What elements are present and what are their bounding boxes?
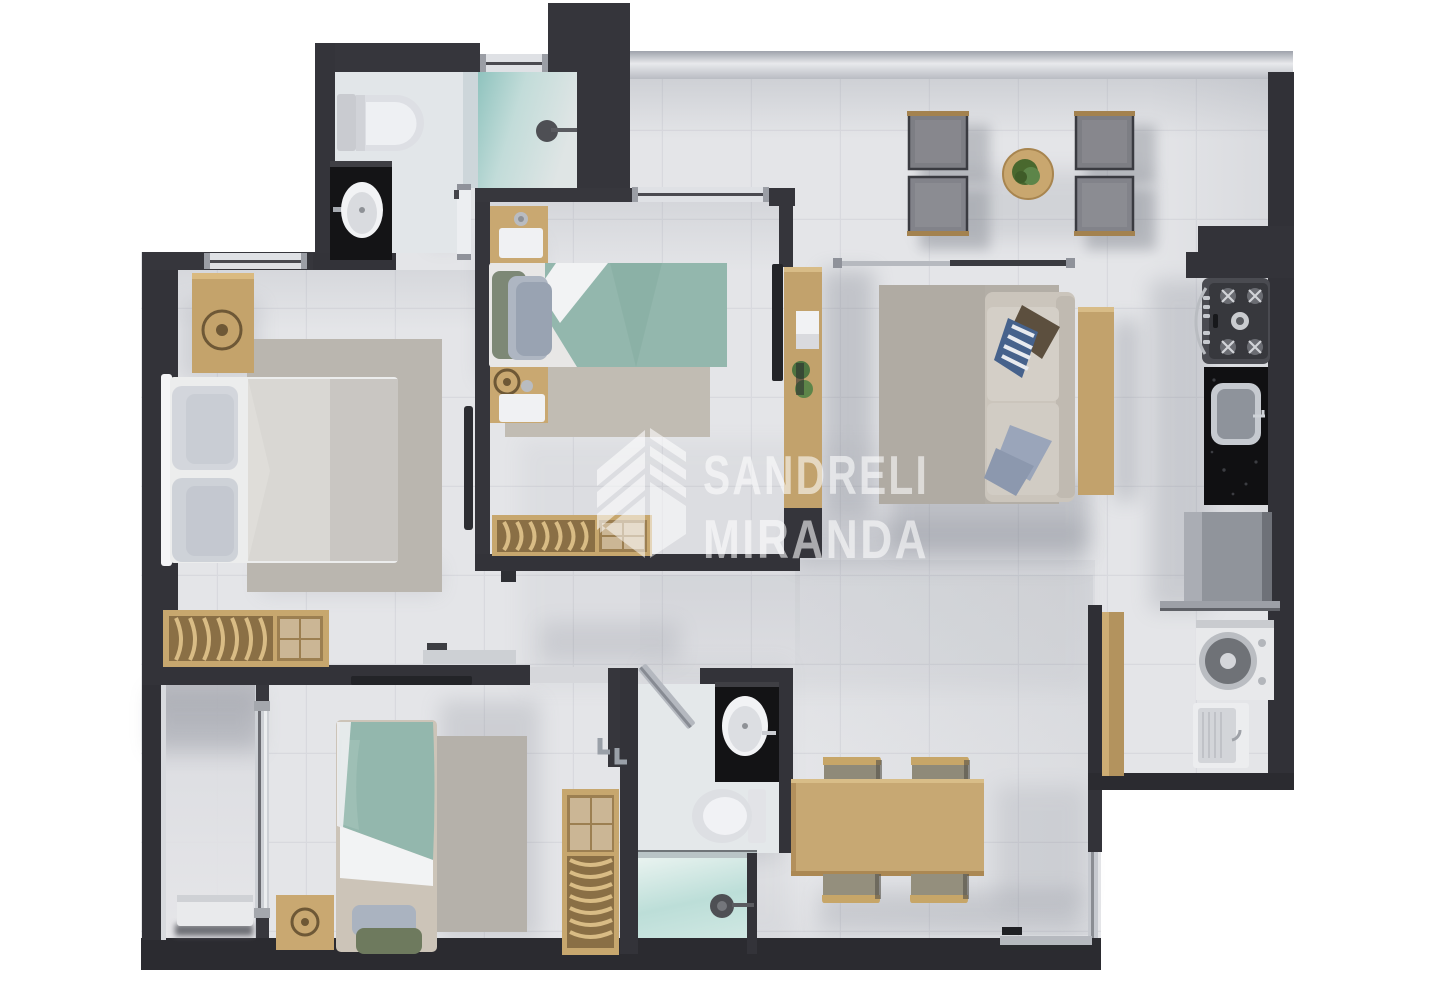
svg-text:MIRANDA: MIRANDA: [703, 508, 929, 570]
svg-text:SANDRELI: SANDRELI: [703, 444, 929, 506]
